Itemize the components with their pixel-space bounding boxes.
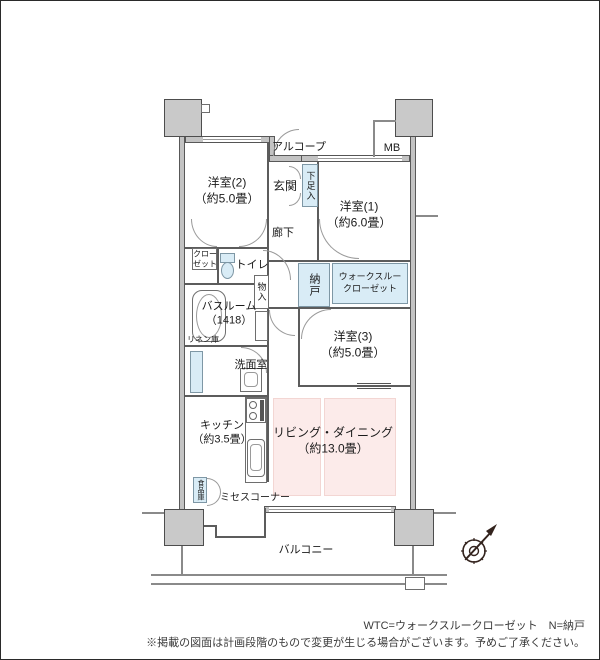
balcony-drain-box [405, 577, 425, 590]
wall-mrs-step-h1 [215, 536, 266, 538]
wall-stub-left [142, 512, 164, 514]
washbasin-inner [244, 372, 258, 387]
floorplan: 洋室(2)（約5.0畳） アルコープ 玄関 下足入 MB 洋室(1)（約6.0畳… [0, 0, 600, 660]
wall-left [179, 136, 185, 511]
stove-burner-1 [249, 401, 257, 409]
room-label-alcove: アルコープ [272, 140, 326, 154]
footer-legend: WTC=ウォークスルークローゼット N=納戸 [146, 618, 585, 635]
balcony-rail-outer [151, 574, 447, 576]
wall-entry-top [269, 155, 305, 162]
monoire-counter [255, 311, 268, 341]
shoebox-door-upper-arc [289, 166, 301, 179]
room-label-mb: MB [384, 141, 401, 155]
wall-mrs-step-v2 [215, 525, 217, 538]
yoshitsu2-closet-arc [191, 219, 217, 247]
window-living [269, 506, 391, 513]
mb-wall-top [373, 120, 396, 122]
room-label-yoshitsu3: 洋室(3)（約5.0畳） [321, 329, 386, 360]
partition-closet-right [217, 247, 219, 284]
balcony-post-right [412, 546, 414, 575]
window-yoshitsu2 [203, 136, 261, 143]
sink-basin [250, 444, 262, 471]
pillar-top-left [164, 99, 202, 137]
room-label-bathroom: バスルーム（1418） [202, 300, 257, 329]
room-label-pantry: 食品庫 [195, 480, 205, 501]
balcony-rail-inner [151, 583, 447, 585]
balcony-post-left [181, 546, 183, 575]
pillar-bottom-right [394, 509, 434, 546]
room-label-balcony: バルコニー [279, 543, 334, 557]
pillar-bottom-left [164, 509, 204, 546]
footer-notes: WTC=ウォークスルークローゼット N=納戸 ※掲載の図面は計画段階のもので変更… [146, 618, 585, 651]
yoshitsu2-door-arc [239, 219, 267, 247]
partition-nando-top [269, 260, 410, 262]
partition-yoshitsu3-left [298, 307, 300, 387]
wall-mrs-step-v1 [264, 508, 266, 538]
partition-bath-bottom [185, 345, 269, 347]
shoebox-door-lower-arc [289, 193, 301, 206]
pillar-top-left-fitting [201, 104, 210, 113]
linen-cabinet [190, 351, 203, 393]
mb-wall-left [373, 120, 375, 157]
footer-disclaimer: ※掲載の図面は計画段階のもので変更が生じる場合がございます。予めご了承ください。 [146, 635, 585, 652]
room-label-mrs-corner: ミセスコーナー [220, 492, 290, 505]
room-label-toilet: トイレ [236, 258, 269, 272]
room-label-shoebox: 下足入 [305, 171, 318, 201]
room-label-corridor: 廊下 [272, 226, 294, 240]
mrs-door-upper-arc [207, 478, 221, 492]
room-label-genkan: 玄関 [273, 179, 297, 195]
room-label-wtc: ウォークスルークローゼット [339, 271, 402, 294]
compass-icon [456, 521, 506, 569]
room-label-monoire: 物入 [256, 282, 269, 302]
partition-yoshitsu3-bottom [298, 385, 410, 387]
room-label-yoshitsu2: 洋室(2)（約5.0畳） [195, 175, 260, 206]
pillar-top-right [395, 99, 433, 137]
room-label-senmen: 洗面室 [235, 358, 268, 372]
nando-door-arc [269, 310, 295, 336]
room-label-closet: クローゼット [193, 249, 217, 268]
wall-stub-right-mid [416, 215, 438, 217]
room-label-linen: リネン庫 [187, 335, 219, 345]
room-label-kitchen: キッチン（約3.5畳） [192, 419, 251, 448]
room-label-yoshitsu1: 洋室(1)（約6.0畳） [327, 199, 392, 230]
toilet-bowl [221, 262, 234, 279]
room-label-nando: 納戸 [306, 273, 322, 297]
window-yoshitsu1 [318, 155, 402, 162]
stove-grill [260, 400, 264, 421]
partition-yoshitsu3-top [269, 307, 410, 309]
wall-right [410, 136, 416, 511]
mrs-door-lower-arc [207, 492, 221, 506]
wall-stub-right-bottom [434, 512, 456, 514]
room-label-living: リビング・ダイニング（約13.0畳） [273, 425, 393, 456]
